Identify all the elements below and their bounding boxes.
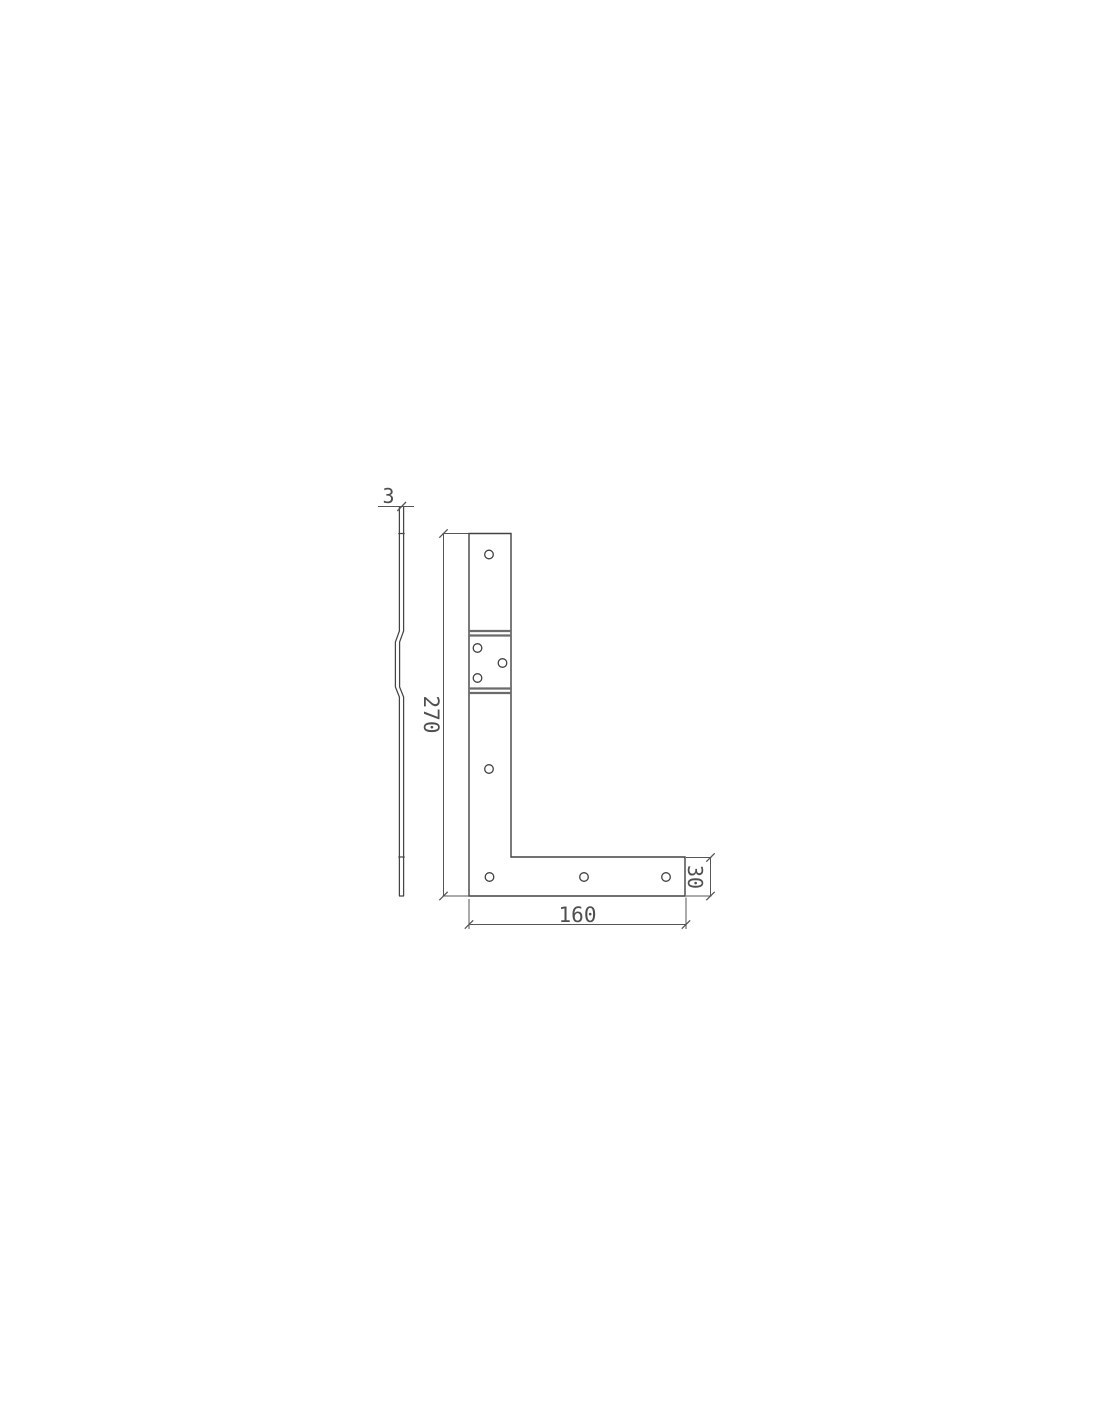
length-dimension-label: 160: [559, 903, 597, 927]
bracket-outline: [469, 534, 685, 897]
length-dimension: 160: [465, 898, 690, 930]
hole-bottom-arm-left: [485, 873, 494, 882]
hole-bottom-arm-right: [662, 873, 671, 882]
side-profile-left-edge: [395, 506, 399, 896]
side-profile-right-edge: [400, 506, 404, 896]
hole-joggle-lower-left: [473, 674, 482, 683]
hole-vertical-arm-lower: [485, 765, 494, 774]
width-dimension-label: 30: [683, 865, 707, 889]
height-dimension: 270: [419, 529, 448, 900]
thickness-dimension: 3: [378, 484, 414, 511]
hole-top: [485, 550, 494, 559]
height-dimension-label: 270: [419, 696, 443, 734]
front-view: [443, 534, 686, 897]
side-view: [395, 506, 404, 896]
technical-drawing: 3 270: [0, 0, 1100, 1422]
hole-joggle-middle-right: [498, 659, 507, 668]
hole-joggle-upper-left: [473, 644, 482, 653]
drawing-sheet: 3 270: [0, 0, 1100, 1422]
width-dimension: 30: [683, 853, 715, 900]
thickness-dimension-label: 3: [382, 484, 394, 508]
hole-bottom-arm-middle: [580, 873, 589, 882]
